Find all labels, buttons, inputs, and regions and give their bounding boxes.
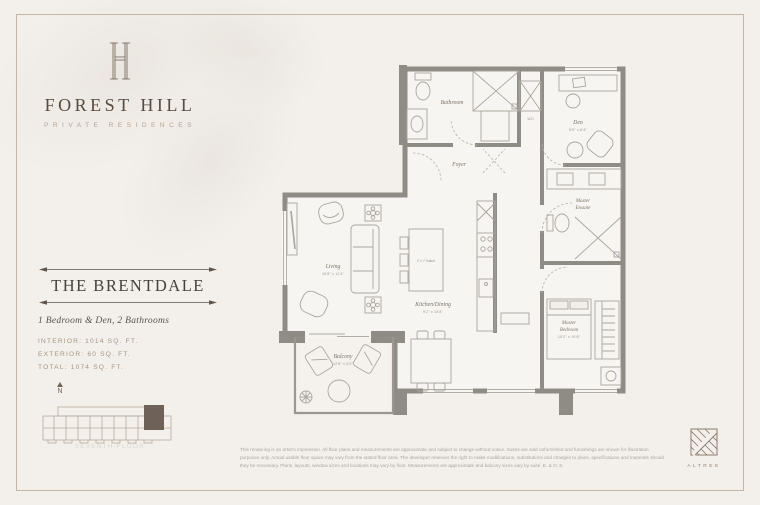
label-den: Den	[572, 120, 583, 126]
floorplan-page: { "brand": { "monogram": "FH", "name": "…	[0, 0, 760, 505]
developer-logo-block: ALTREE	[686, 428, 722, 469]
developer-logo-name: ALTREE	[686, 464, 722, 469]
north-label: N	[54, 388, 66, 395]
label-island: 2' x 7' Island	[417, 259, 435, 263]
keyplan-diagram	[40, 400, 176, 446]
rule-bottom	[38, 299, 218, 306]
dims-den: 8'6" x 8'4"	[569, 128, 587, 132]
label-bathroom: Bathroom	[441, 100, 464, 106]
brand-name: FOREST HILL	[35, 95, 205, 116]
stat-total: TOTAL: 1074 SQ. FT.	[38, 361, 218, 374]
brand-tagline: PRIVATE RESIDENCES	[35, 122, 205, 129]
altree-logo-icon	[690, 428, 718, 456]
label-kitchen: Kitchen/Dining	[414, 302, 451, 308]
stat-interior: INTERIOR: 1014 SQ. FT.	[38, 335, 218, 348]
label-bedroom-1: Master	[561, 321, 576, 326]
disclaimer-text: This rendering is an artist's impression…	[240, 446, 664, 470]
dims-living: 10'6" x 11'4"	[322, 272, 345, 276]
forest-hill-monogram-icon	[108, 40, 132, 82]
unit-type: 1 Bedroom & Den, 2 Bathrooms	[38, 316, 218, 326]
label-living: Living	[325, 264, 341, 270]
north-arrow-icon: N	[54, 382, 66, 395]
unit-info-block: THE BRENTDALE 1 Bedroom & Den, 2 Bathroo…	[38, 266, 218, 374]
stat-exterior: EXTERIOR: 60 SQ. FT.	[38, 348, 218, 361]
label-balcony: Balcony	[334, 354, 353, 360]
floorplan-drawing: Bathroom W.D. Den 8'6" x 8'4" Foyer Mast…	[273, 53, 633, 433]
dims-bedroom: 10'2" x 10'8"	[558, 335, 581, 339]
keyplan-caption: SEVENTH FLOOR	[40, 444, 180, 450]
keyplan-highlight-unit	[144, 405, 164, 430]
brand-block: FOREST HILL PRIVATE RESIDENCES	[35, 40, 205, 129]
dims-balcony: 12'8" x 5'0"	[333, 362, 354, 366]
label-wd: W.D.	[527, 117, 534, 121]
dims-kitchen: 9'2" x 14'8"	[423, 310, 444, 314]
unit-stats: INTERIOR: 1014 SQ. FT. EXTERIOR: 60 SQ. …	[38, 335, 218, 374]
unit-name: THE BRENTDALE	[38, 276, 218, 296]
rule-top	[38, 266, 218, 273]
label-ensuite-2: Ensuite	[575, 206, 592, 211]
label-ensuite-1: Master	[575, 199, 590, 204]
label-bedroom-2: Bedroom	[560, 328, 579, 333]
label-foyer: Foyer	[451, 162, 467, 168]
